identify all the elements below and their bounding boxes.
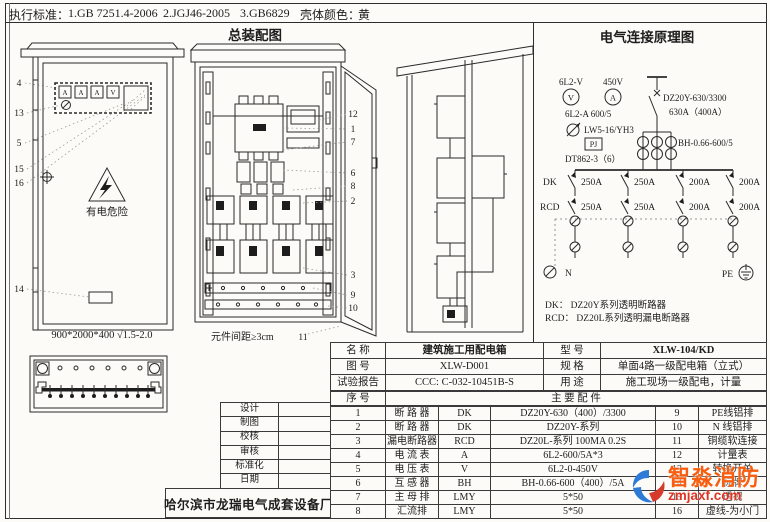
parts-header-row: 序 号 主 要 配 件 [330, 391, 767, 406]
part-name2: PE线铝排 [699, 407, 767, 421]
table-row: 2 断 路 器 DK DZ20Y-系列 10 N 线铝排 [331, 421, 767, 435]
pj-label: PJ [590, 140, 598, 149]
rcd-label: RCD [540, 203, 560, 213]
rcd-rating-4: 200A [739, 203, 760, 213]
switch-model: LW5-16/YH3 [584, 125, 634, 135]
part-name: 断 路 器 [386, 421, 439, 435]
title-block-value [279, 474, 331, 488]
title-block-value [279, 431, 331, 445]
part-code: V [439, 463, 491, 477]
part-name2: 计量表 [699, 449, 767, 463]
branch-1 [568, 170, 580, 258]
part-spec: DZ20Y-系列 [491, 421, 656, 435]
part-no: 8 [331, 505, 386, 519]
header-divider [5, 22, 767, 23]
pe-ground-icon [739, 264, 753, 280]
schematic-title: 电气连接原理图 [600, 29, 695, 45]
cabinet-dimensions: 900*2000*400 √1.5-2.0 [51, 329, 152, 341]
part-name2: 透视 [699, 491, 767, 505]
parts-table: 1 断 路 器 DK DZ20Y-630（400）/3300 9 PE线铝排 2… [330, 406, 767, 519]
part-spec: 6L2-0-450V [491, 463, 656, 477]
usage-value: 施工现场一级配电，计量 [601, 375, 767, 391]
part-name: 主 母 排 [386, 491, 439, 505]
part-no2: 13 [656, 463, 699, 477]
standard-1: 1.GB 7251.4-2006 [68, 6, 158, 21]
part-no: 3 [331, 435, 386, 449]
callout-9: 9 [351, 291, 356, 301]
top-view-drawing [28, 352, 170, 416]
callout-4: 4 [17, 79, 22, 89]
n-label: N [565, 269, 572, 279]
standard-3: 3.GB6829 [240, 6, 290, 21]
front-view-drawing: 4 13 5 15 16 14 [5, 40, 183, 340]
legend-dk: DK： DZ20Y系列透明断路器 [545, 299, 667, 311]
part-spec: DZ20Y-630（400）/3300 [491, 407, 656, 421]
callout-1: 1 [351, 125, 356, 135]
part-code: LMY [439, 505, 491, 519]
voltmeter-symbol: V [568, 93, 575, 103]
table-row: 7 主 母 排 LMY 5*50 15 透视 [331, 491, 767, 505]
dk-rating-2: 250A [634, 178, 655, 188]
table-row: 3 漏电断路器 RCD DZ20L-系列 100MA 0.2S 11 铜缆软连接 [331, 435, 767, 449]
title-block-label: 设计 [221, 403, 279, 417]
part-name: 互 感 器 [386, 477, 439, 491]
part-no2: 9 [656, 407, 699, 421]
spec-header-table: 名 称 建筑施工用配电箱 型 号 XLW-104/KD 图 号 XLW-D001… [330, 342, 767, 391]
name-label: 名 称 [331, 343, 386, 359]
callout-5: 5 [17, 139, 22, 149]
table-row: 4 电 流 表 A 6L2-600/5A*3 12 计量表 [331, 449, 767, 463]
ammeter-symbol: A [610, 93, 617, 103]
ct-model: BH-0.66-600/5 [678, 138, 733, 148]
busbar-with-bolts [36, 382, 161, 398]
part-no: 7 [331, 491, 386, 505]
part-name2: N 线铝排 [699, 421, 767, 435]
part-no2: 14 [656, 477, 699, 491]
manufacturer-name: 哈尔滨市龙瑞电气成套设备厂 [165, 488, 332, 518]
assembly-leader-lines [283, 114, 347, 308]
energy-meter-box [287, 106, 319, 148]
spec-table-region: 名 称 建筑施工用配电箱 型 号 XLW-104/KD 图 号 XLW-D001… [330, 342, 767, 519]
mounting-rails [203, 72, 333, 315]
ammeter-model: 6L2-A 600/5 [565, 109, 612, 119]
standards-label: 执行标准： [9, 6, 69, 23]
part-name: 断 路 器 [386, 407, 439, 421]
part-no: 5 [331, 463, 386, 477]
callout-15: 15 [14, 165, 24, 175]
callout-6: 6 [351, 169, 356, 179]
branch-4 [726, 170, 738, 258]
rcd-rating-2: 250A [634, 203, 655, 213]
meter-a3: A [94, 89, 99, 97]
part-code: LMY [439, 491, 491, 505]
main-breaker-model: DZ20Y-630/3300 [663, 93, 727, 103]
spec-label: 规 格 [544, 359, 601, 375]
title-block: 设计 制图 校核 审核 标准化 日期 [220, 402, 331, 489]
part-name: 电 压 表 [386, 463, 439, 477]
part-name: 电 流 表 [386, 449, 439, 463]
part-code: DK [439, 421, 491, 435]
part-spec: 5*50 [491, 491, 656, 505]
danger-text: 有电危险 [86, 205, 128, 218]
assembly-view-drawing: 12 1 7 6 8 2 3 9 10 元件间距≥3cm 11 [183, 38, 385, 350]
branch-3 [676, 170, 688, 258]
breaker-row-2 [207, 240, 333, 273]
table-row: 5 电 压 表 V 6L2-0-450V 13 转换开关 [331, 463, 767, 477]
table-row: 1 断 路 器 DK DZ20Y-630（400）/3300 9 PE线铝排 [331, 407, 767, 421]
dk-rating-4: 200A [739, 178, 760, 188]
dk-rating-1: 250A [581, 178, 602, 188]
rcd-rating-3: 200A [689, 203, 710, 213]
breaker-row-1 [207, 196, 333, 240]
legend-rcd: RCD： DZ20L系列透明漏电断路器 [545, 312, 690, 324]
changeover-switch-icon [567, 123, 580, 136]
part-spec: 6L2-600/5A*3 [491, 449, 656, 463]
spacing-note: 元件间距≥3cm [211, 330, 274, 343]
figure-value: XLW-D001 [386, 359, 544, 375]
title-block-label: 审核 [221, 445, 279, 459]
window-glass [124, 86, 148, 110]
rcd-linkage-dashed [555, 219, 737, 266]
ct-symbols [638, 132, 677, 170]
part-spec: 5*50 [491, 505, 656, 519]
cabinet-roof [21, 43, 184, 57]
part-name: 漏电断路器 [386, 435, 439, 449]
meter-a2: A [78, 89, 83, 97]
engineering-drawing-sheet: 执行标准： 1.GB 7251.4-2006 2.JGJ46-2005 3.GB… [0, 0, 770, 522]
part-spec: DZ20L-系列 100MA 0.2S [491, 435, 656, 449]
callout-12: 12 [348, 110, 358, 120]
callout-7: 7 [351, 138, 356, 148]
branch-2 [621, 170, 633, 258]
table-row: 6 互 感 器 BH BH-0.66-600（400）/5A 14 标牌 [331, 477, 767, 491]
title-block-label: 标准化 [221, 460, 279, 474]
title-block-label: 日期 [221, 474, 279, 488]
part-name2: 标牌 [699, 477, 767, 491]
part-code: RCD [439, 435, 491, 449]
voltmeter-range: 450V [603, 77, 624, 87]
neutral-terminal [544, 266, 556, 278]
usage-label: 用 途 [544, 375, 601, 391]
part-no: 4 [331, 449, 386, 463]
side-view-drawing [393, 40, 541, 340]
electric-danger-sign: 有电危险 [86, 168, 128, 218]
seq-label: 序 号 [331, 392, 386, 406]
part-no2: 11 [656, 435, 699, 449]
shell-color-label: 壳体颜色： [300, 6, 360, 23]
main-breaker-symbol [643, 77, 671, 132]
model-value: XLW-104/KD [601, 343, 767, 359]
schematic-diagram: 电气连接原理图 6L2-V 450V V A 6L2-A 600/5 LW5-1… [535, 24, 765, 342]
part-code: A [439, 449, 491, 463]
current-transformers [237, 162, 284, 194]
part-name2: 转换开关 [699, 463, 767, 477]
meter-panel: A A A V [55, 83, 151, 113]
report-label: 试验报告 [331, 375, 386, 391]
part-no2: 16 [656, 505, 699, 519]
name-value: 建筑施工用配电箱 [386, 343, 544, 359]
callout-16: 16 [14, 179, 24, 189]
callout-13: 13 [14, 109, 24, 119]
part-code: DK [439, 407, 491, 421]
title-block-value [279, 445, 331, 459]
table-row: 8 汇流排 LMY 5*50 16 虚线-为小门 [331, 505, 767, 519]
meter-a1: A [62, 89, 67, 97]
part-code: BH [439, 477, 491, 491]
screw-holes [58, 366, 142, 370]
part-name: 汇流排 [386, 505, 439, 519]
part-no2: 10 [656, 421, 699, 435]
callout-14: 14 [14, 285, 24, 295]
part-name2: 虚线-为小门 [699, 505, 767, 519]
side-components [434, 96, 507, 322]
title-block-value [279, 403, 331, 417]
spec-value: 单面4路一级配电箱（立式） [601, 359, 767, 375]
title-block-value [279, 460, 331, 474]
energy-meter-model: DT862-3（6） [565, 154, 621, 164]
title-block-label: 制图 [221, 417, 279, 431]
meter-v: V [110, 89, 115, 97]
callout-8: 8 [351, 182, 356, 192]
assembly-roof [191, 44, 345, 62]
standard-2: 2.JGJ46-2005 [163, 6, 230, 21]
part-name2: 铜缆软连接 [699, 435, 767, 449]
bottom-busbars [205, 283, 331, 309]
part-no2: 12 [656, 449, 699, 463]
part-no2: 15 [656, 491, 699, 505]
callout-3: 3 [351, 271, 356, 281]
main-breaker-rating: 630A（400A） [669, 107, 727, 117]
voltmeter-model: 6L2-V [559, 77, 583, 87]
title-block-label: 校核 [221, 431, 279, 445]
callout-2: 2 [351, 197, 356, 207]
pe-label: PE [722, 270, 733, 280]
part-no: 1 [331, 407, 386, 421]
part-spec: BH-0.66-600（400）/5A [491, 477, 656, 491]
title-block-value [279, 417, 331, 431]
dk-rating-3: 200A [689, 178, 710, 188]
model-label: 型 号 [544, 343, 601, 359]
rotary-switch-icon [62, 101, 71, 110]
part-no: 2 [331, 421, 386, 435]
callout-10: 10 [348, 304, 358, 314]
door-handle [89, 292, 112, 303]
rcd-rating-1: 250A [581, 203, 602, 213]
callout-11: 11 [298, 333, 307, 343]
parts-header: 主 要 配 件 [386, 392, 767, 406]
figure-label: 图 号 [331, 359, 386, 375]
part-no: 6 [331, 477, 386, 491]
shell-color-value: 黄 [358, 6, 370, 23]
dk-label: DK [543, 178, 557, 188]
report-value: CCC: C-032-10451B-S [386, 375, 544, 391]
